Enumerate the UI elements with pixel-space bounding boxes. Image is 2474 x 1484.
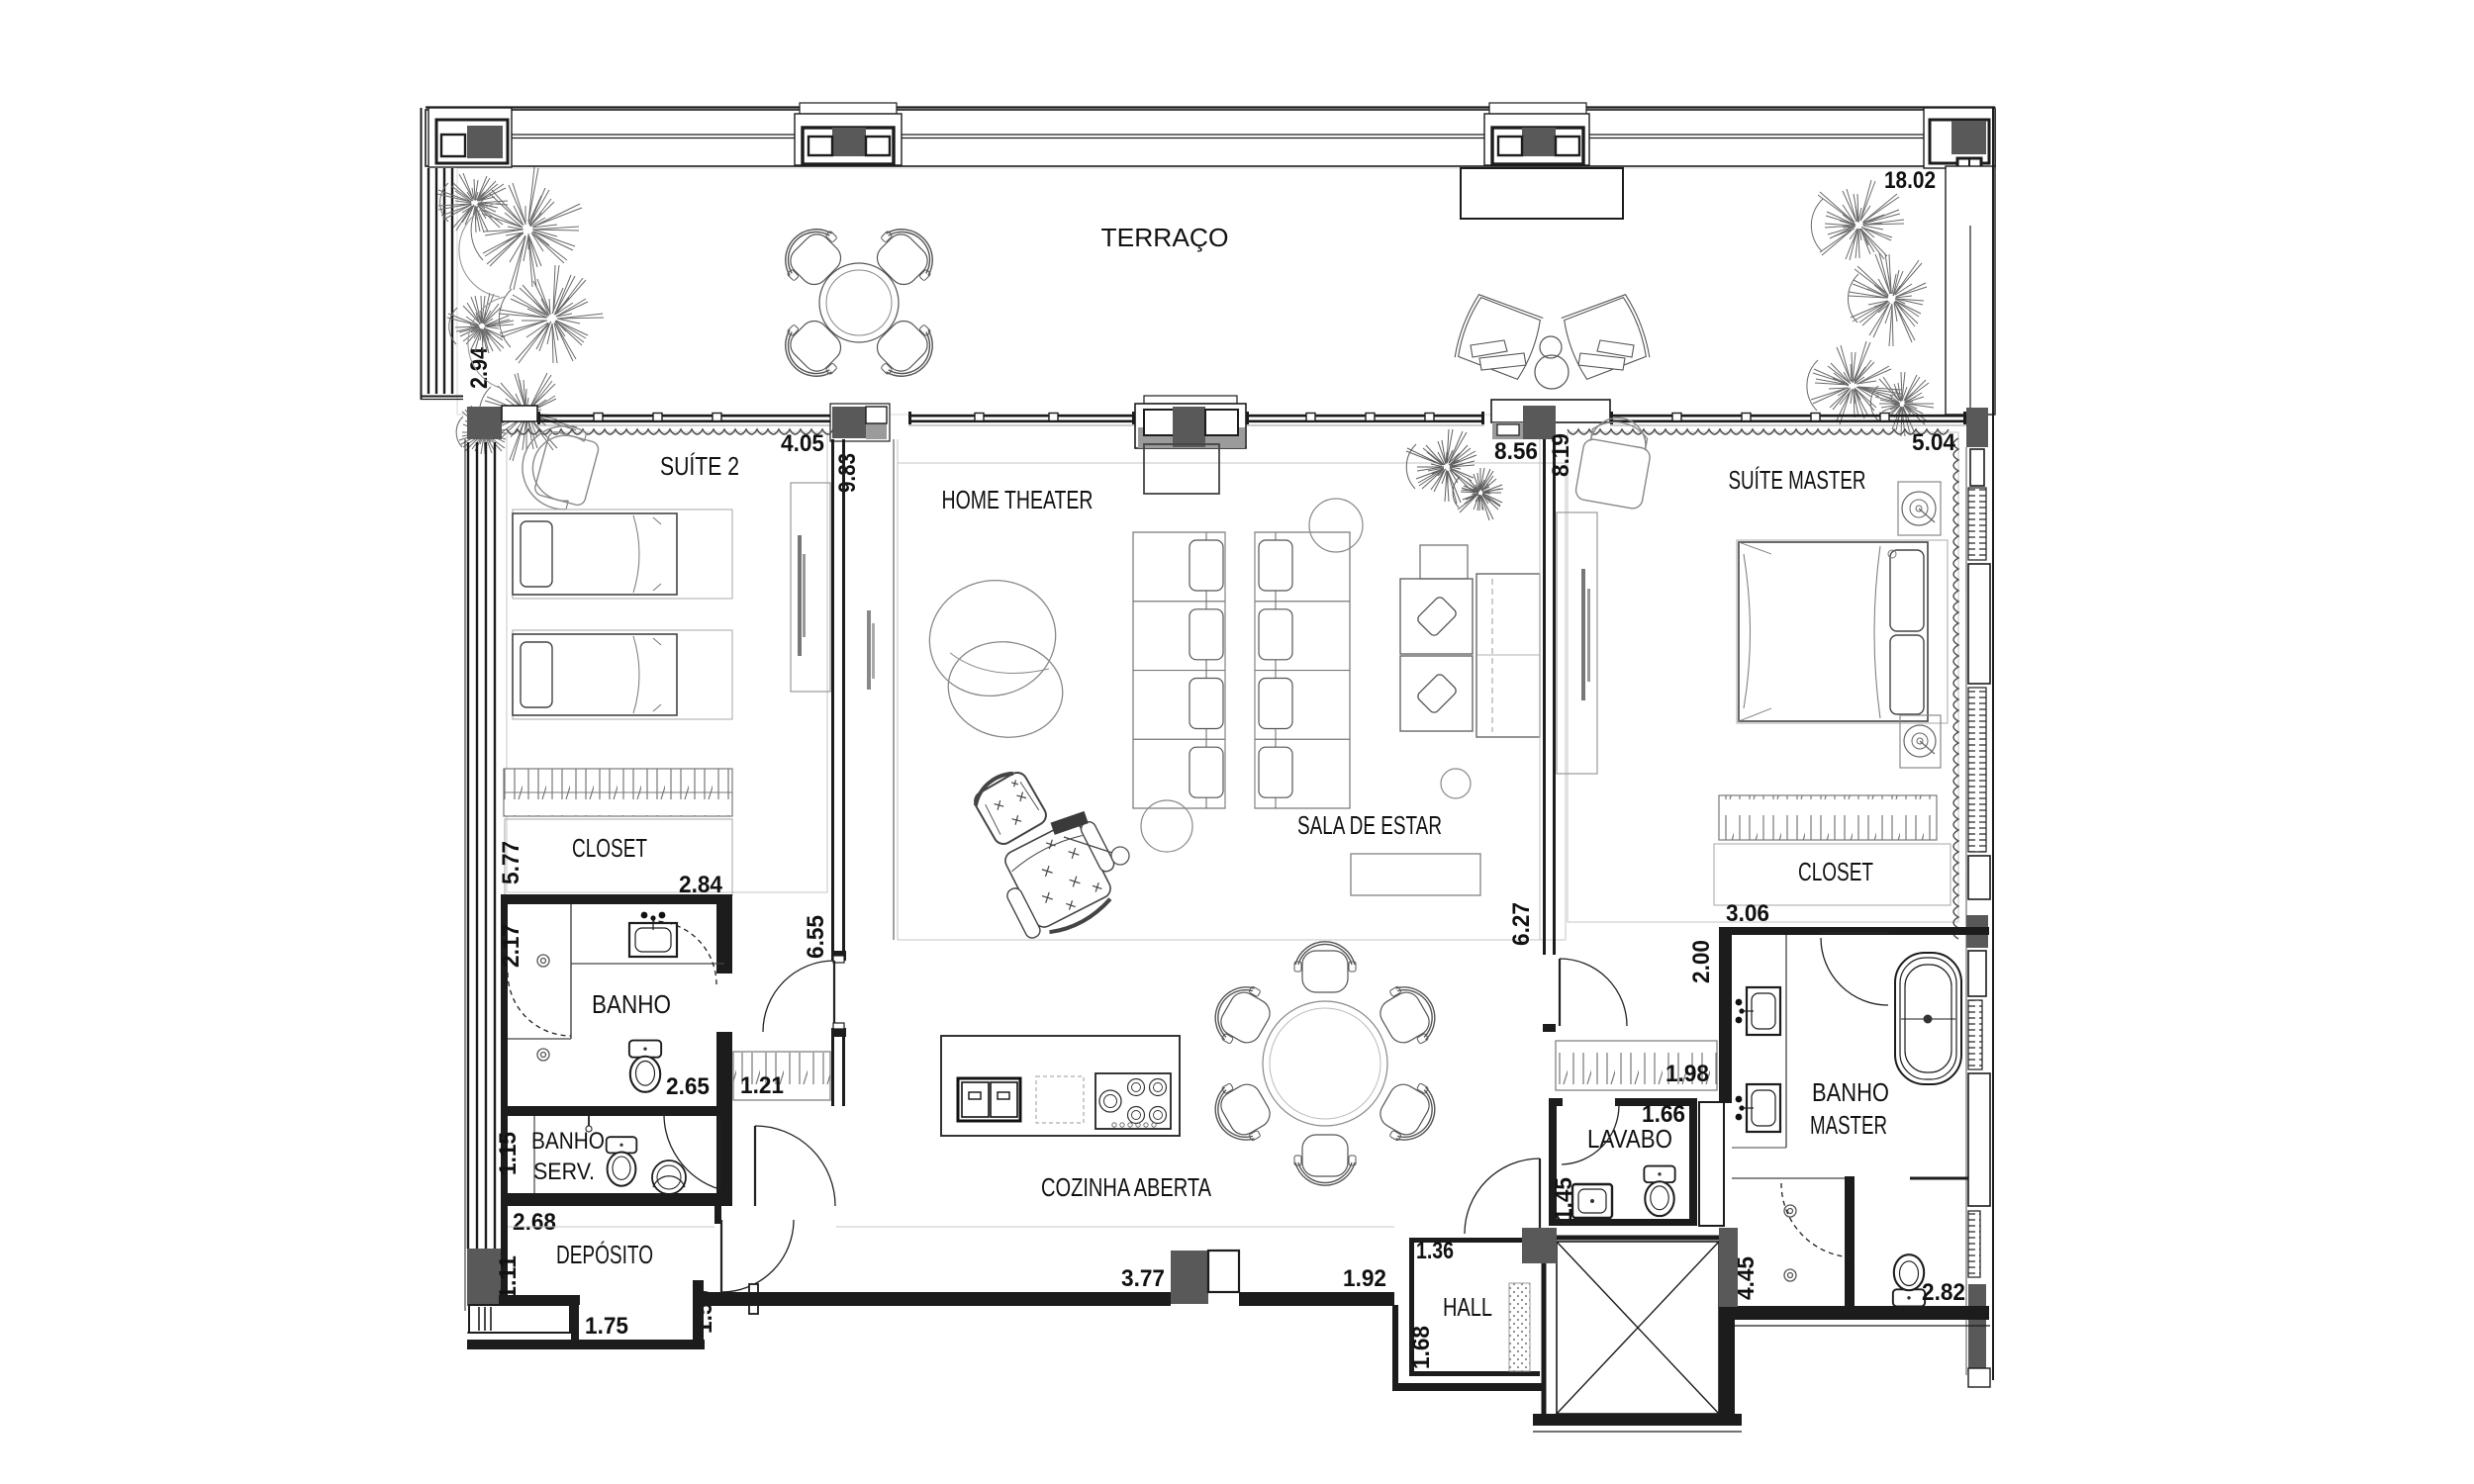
svg-text:DEPÓSITO: DEPÓSITO (556, 1240, 653, 1269)
svg-text:1.36: 1.36 (1416, 1238, 1454, 1264)
svg-text:5.77: 5.77 (498, 841, 524, 884)
svg-text:BANHO: BANHO (1812, 1077, 1889, 1107)
svg-text:1.11: 1.11 (495, 1255, 522, 1299)
svg-text:1.21: 1.21 (740, 1072, 784, 1099)
svg-text:2.00: 2.00 (1688, 940, 1715, 983)
svg-text:COZINHA ABERTA: COZINHA ABERTA (1041, 1172, 1212, 1202)
svg-text:2.65: 2.65 (666, 1073, 710, 1100)
svg-text:1.92: 1.92 (1343, 1265, 1386, 1292)
svg-text:TERRAÇO: TERRAÇO (1101, 223, 1229, 252)
svg-text:BANHO: BANHO (531, 1128, 605, 1155)
svg-text:SERV.: SERV. (533, 1159, 595, 1185)
svg-text:MASTER: MASTER (1810, 1110, 1887, 1140)
svg-text:HALL: HALL (1443, 1292, 1492, 1322)
svg-text:2.68: 2.68 (513, 1209, 556, 1236)
svg-text:1.66: 1.66 (1642, 1101, 1685, 1128)
svg-text:3.06: 3.06 (1726, 900, 1769, 927)
svg-text:1.68: 1.68 (1408, 1326, 1435, 1369)
svg-text:SUÍTE 2: SUÍTE 2 (660, 451, 739, 481)
svg-text:SALA DE ESTAR: SALA DE ESTAR (1297, 810, 1442, 840)
svg-text:2.84: 2.84 (679, 872, 723, 898)
svg-text:9.83: 9.83 (834, 453, 861, 493)
svg-text:HOME THEATER: HOME THEATER (942, 485, 1094, 514)
svg-text:1.98: 1.98 (1665, 1061, 1709, 1087)
svg-text:1.15: 1.15 (495, 1132, 522, 1175)
svg-text:BANHO: BANHO (592, 989, 671, 1019)
svg-text:2.82: 2.82 (1922, 1279, 1965, 1306)
svg-text:6.27: 6.27 (1508, 902, 1535, 946)
svg-text:CLOSET: CLOSET (1798, 857, 1873, 886)
svg-text:6.55: 6.55 (803, 915, 829, 959)
svg-text:CLOSET: CLOSET (572, 833, 647, 863)
svg-text:SUÍTE MASTER: SUÍTE MASTER (1729, 465, 1866, 495)
svg-text:5.04: 5.04 (1912, 429, 1956, 456)
svg-text:1.75: 1.75 (585, 1313, 628, 1340)
svg-text:8.19: 8.19 (1548, 433, 1574, 477)
svg-text:2.17: 2.17 (498, 924, 524, 968)
svg-text:18.02: 18.02 (1884, 167, 1936, 194)
svg-text:8.56: 8.56 (1494, 438, 1538, 465)
svg-text:4.05: 4.05 (781, 430, 824, 457)
svg-text:3.77: 3.77 (1121, 1265, 1165, 1292)
